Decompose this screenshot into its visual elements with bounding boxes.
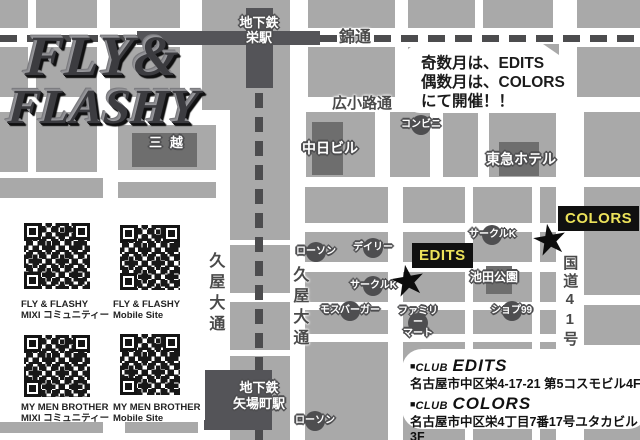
venue-star-edits: ★	[386, 257, 430, 305]
city-block	[408, 0, 475, 28]
store-label-lawson-mid: ローソン	[296, 246, 336, 258]
station-label-sakae: 地下鉄 栄駅	[230, 15, 288, 45]
city-block	[483, 0, 553, 28]
city-block	[403, 187, 465, 223]
store-label-family-mart: ファミリー マート	[394, 306, 442, 339]
city-block	[0, 178, 103, 198]
qr-finder-icon	[24, 380, 41, 397]
store-label-shop99: ショプ99	[491, 305, 532, 317]
store-label-circlek-upper: サークルK	[469, 229, 516, 241]
qr-label-4: MY MEN BROTHER Mobile Site	[113, 402, 200, 424]
qr-finder-icon	[120, 334, 137, 351]
qr-finder-icon	[163, 334, 180, 351]
city-block	[308, 0, 395, 28]
city-block	[305, 187, 388, 223]
qr-finder-icon	[24, 272, 41, 289]
bubble-corner-notch	[543, 44, 559, 55]
store-label-conbini: コンビニ	[401, 119, 441, 131]
place-label-mitsukoshi: 三越	[149, 136, 191, 151]
city-block	[473, 187, 532, 223]
place-label-chunichi-building: 中日ビル	[302, 140, 358, 156]
city-block	[308, 47, 395, 97]
qr-label-1: FLY & FLASHY MIXI コミュニティー	[21, 299, 109, 321]
place-label-ikeda-park: 池田公園	[470, 271, 518, 285]
place-label-tokyu-hotel: 東急ホテル	[486, 151, 556, 167]
qr-finder-icon	[120, 378, 137, 395]
qr-finder-icon	[120, 273, 137, 290]
qr-finder-icon	[24, 335, 41, 352]
qr-code-mixi-community	[20, 219, 94, 293]
club-colors-title: ■CLUB COLORS	[410, 395, 640, 415]
store-label-mos-burger: モスバーガー	[320, 305, 380, 317]
announcement-line2: 偶数月は、COLORS	[421, 73, 574, 92]
city-block	[0, 0, 28, 28]
logo-line2: FLASHY	[7, 84, 201, 130]
street-label-nishiki: 錦通	[339, 29, 371, 47]
qr-finder-icon	[73, 335, 90, 352]
bubble-tail	[556, 427, 584, 440]
store-label-daily: デイリー	[353, 242, 393, 254]
qr-code-mobile-site	[116, 221, 184, 294]
club-colors-address: 名古屋市中区栄4丁目7番17号ユタカビル3F	[410, 415, 640, 440]
city-block	[577, 0, 640, 28]
city-block	[540, 272, 556, 302]
qr-label-2: FLY & FLASHY Mobile Site	[113, 299, 180, 321]
street-label-route41: 国道41号	[561, 255, 578, 349]
city-block	[36, 0, 97, 28]
announcement-line1: 奇数月は、EDITS	[421, 54, 574, 73]
venue-star-colors: ★	[528, 216, 572, 264]
qr-finder-icon	[163, 225, 180, 242]
city-block	[118, 182, 216, 198]
street-label-hisaya-right: 久屋大通	[289, 266, 307, 350]
city-block	[577, 47, 640, 97]
venue-flag-colors: COLORS	[558, 206, 639, 231]
street-label-hisaya-left: 久屋大通	[205, 252, 223, 336]
address-bubble: ■CLUB EDITS 名古屋市中区栄4-17-21 第5コスモビル4F ■CL…	[402, 349, 640, 429]
city-block	[584, 112, 640, 177]
qr-finder-icon	[24, 223, 41, 240]
club-edits-title: ■CLUB EDITS	[410, 357, 640, 377]
fly-and-flashy-logo: FLY& FLASHY	[7, 30, 205, 130]
street-label-hirokoji: 広小路通	[332, 95, 392, 112]
city-block	[443, 112, 478, 177]
city-block	[584, 187, 640, 295]
logo-line1: FLY&	[24, 30, 204, 84]
qr-code-brother-mobile	[116, 330, 184, 399]
flyer-canvas: 錦通 地下鉄 栄駅 広小路通 三越 中日ビル コンビニ 東急ホテル サークルK …	[0, 0, 640, 440]
qr-label-3: MY MEN BROTHER MIXI コミュニティー	[21, 402, 109, 424]
qr-finder-icon	[73, 223, 90, 240]
city-block	[110, 0, 180, 28]
city-block	[540, 310, 556, 334]
announcement-line3: にて開催！！	[421, 92, 574, 111]
club-edits-address: 名古屋市中区栄4-17-21 第5コスモビル4F	[410, 377, 640, 392]
store-label-lawson-bottom: ローソン	[295, 415, 335, 427]
station-label-yabacho: 地下鉄 矢場町駅	[222, 380, 296, 412]
qr-code-brother-mixi	[20, 331, 94, 401]
city-block	[584, 305, 640, 345]
qr-finder-icon	[120, 225, 137, 242]
